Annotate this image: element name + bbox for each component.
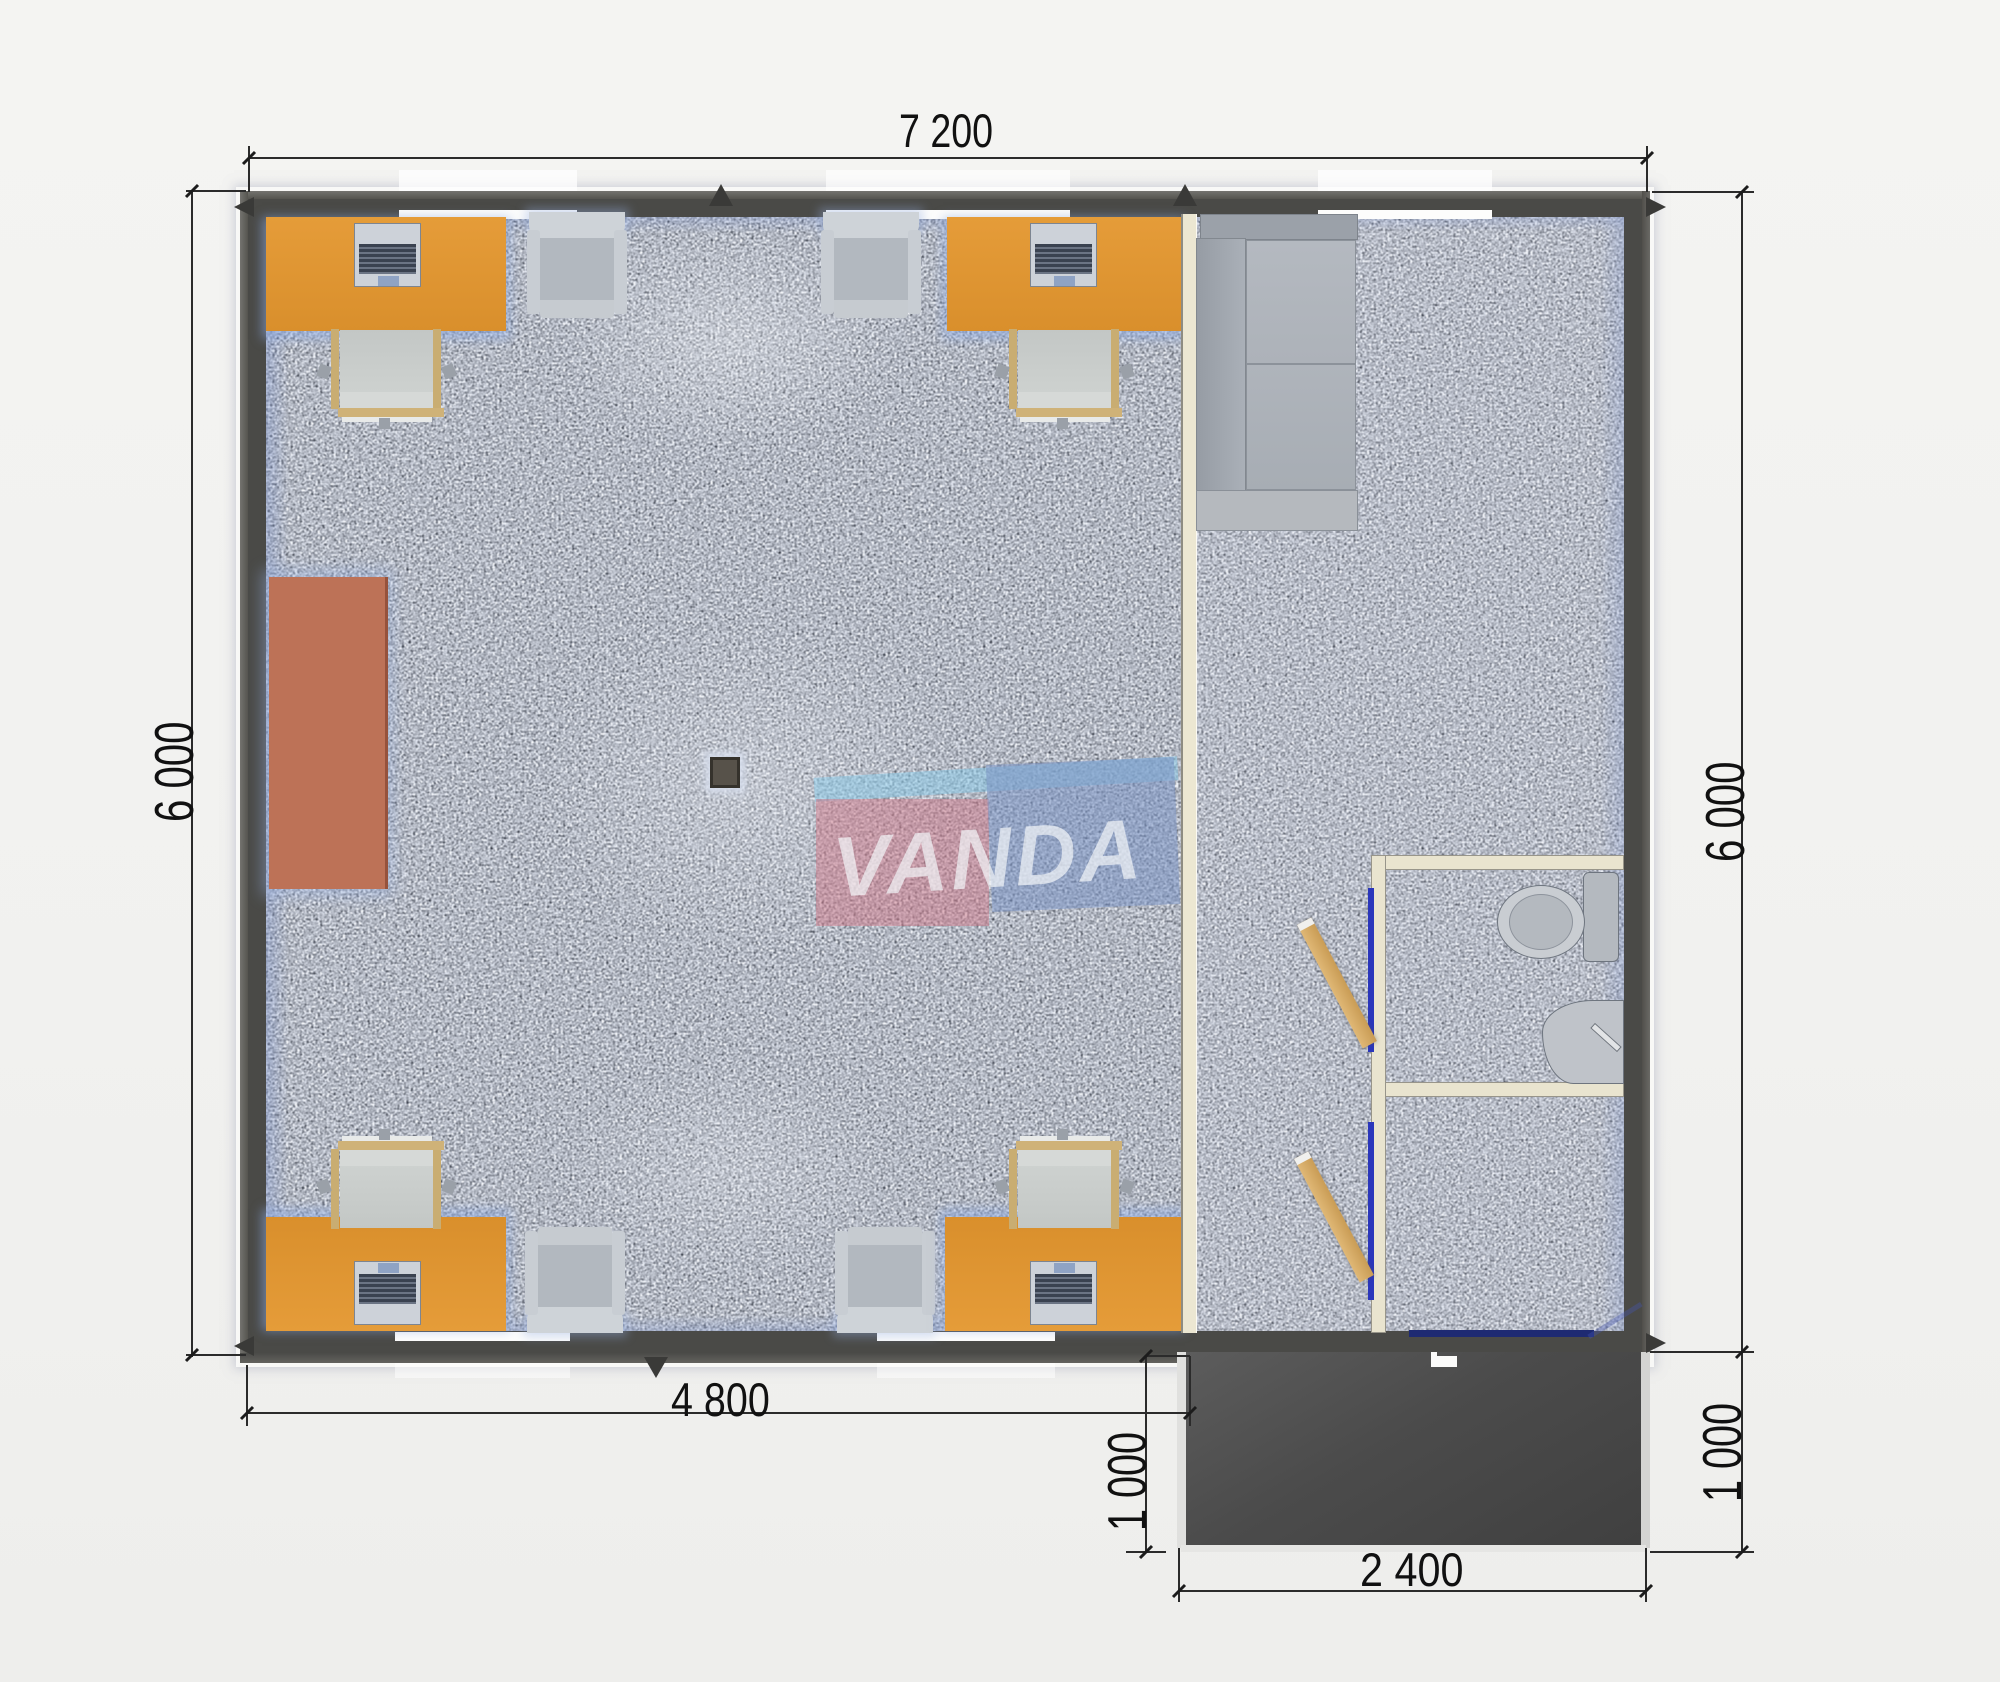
svg-text:6 000: 6 000 [1695, 762, 1757, 862]
svg-text:6 000: 6 000 [144, 722, 206, 822]
svg-text:2 400: 2 400 [1360, 1545, 1463, 1597]
svg-text:7 200: 7 200 [899, 105, 993, 158]
svg-text:1 000: 1 000 [1098, 1432, 1159, 1531]
svg-text:4 800: 4 800 [671, 1375, 770, 1427]
svg-text:1 000: 1 000 [1693, 1403, 1754, 1502]
